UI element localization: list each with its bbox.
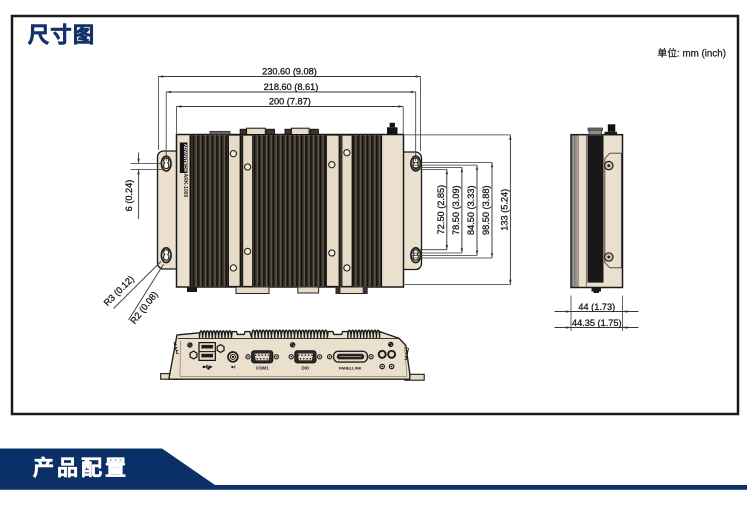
svg-text:200 (7.87): 200 (7.87)	[269, 97, 311, 107]
svg-text:COM1: COM1	[256, 366, 269, 371]
svg-text:230.60 (9.08): 230.60 (9.08)	[262, 67, 317, 77]
svg-text:84.50 (3.33): 84.50 (3.33)	[466, 185, 476, 235]
svg-text:ADVANTECH: ADVANTECH	[183, 144, 188, 172]
svg-text:98.50 (3.88): 98.50 (3.88)	[481, 185, 491, 235]
svg-text:72.50 (2.85): 72.50 (2.85)	[436, 185, 446, 235]
svg-text:78.50 (3.09): 78.50 (3.09)	[451, 185, 461, 235]
svg-text:尺寸图: 尺寸图	[28, 23, 96, 47]
svg-text:133 (5.24): 133 (5.24)	[499, 189, 509, 231]
svg-text:单位: mm (inch): 单位: mm (inch)	[657, 47, 726, 60]
svg-text:44.35 (1.75): 44.35 (1.75)	[572, 318, 622, 328]
svg-text:PANELLINK: PANELLINK	[339, 365, 362, 370]
svg-text:218.60 (8.61): 218.60 (8.61)	[264, 82, 319, 92]
svg-text:44 (1.73): 44 (1.73)	[578, 302, 615, 312]
svg-text:ARK-1000: ARK-1000	[182, 174, 188, 198]
svg-text:产品配置: 产品配置	[33, 456, 129, 480]
svg-text:DIO: DIO	[301, 366, 309, 371]
svg-text:6 (0.24): 6 (0.24)	[124, 180, 134, 212]
